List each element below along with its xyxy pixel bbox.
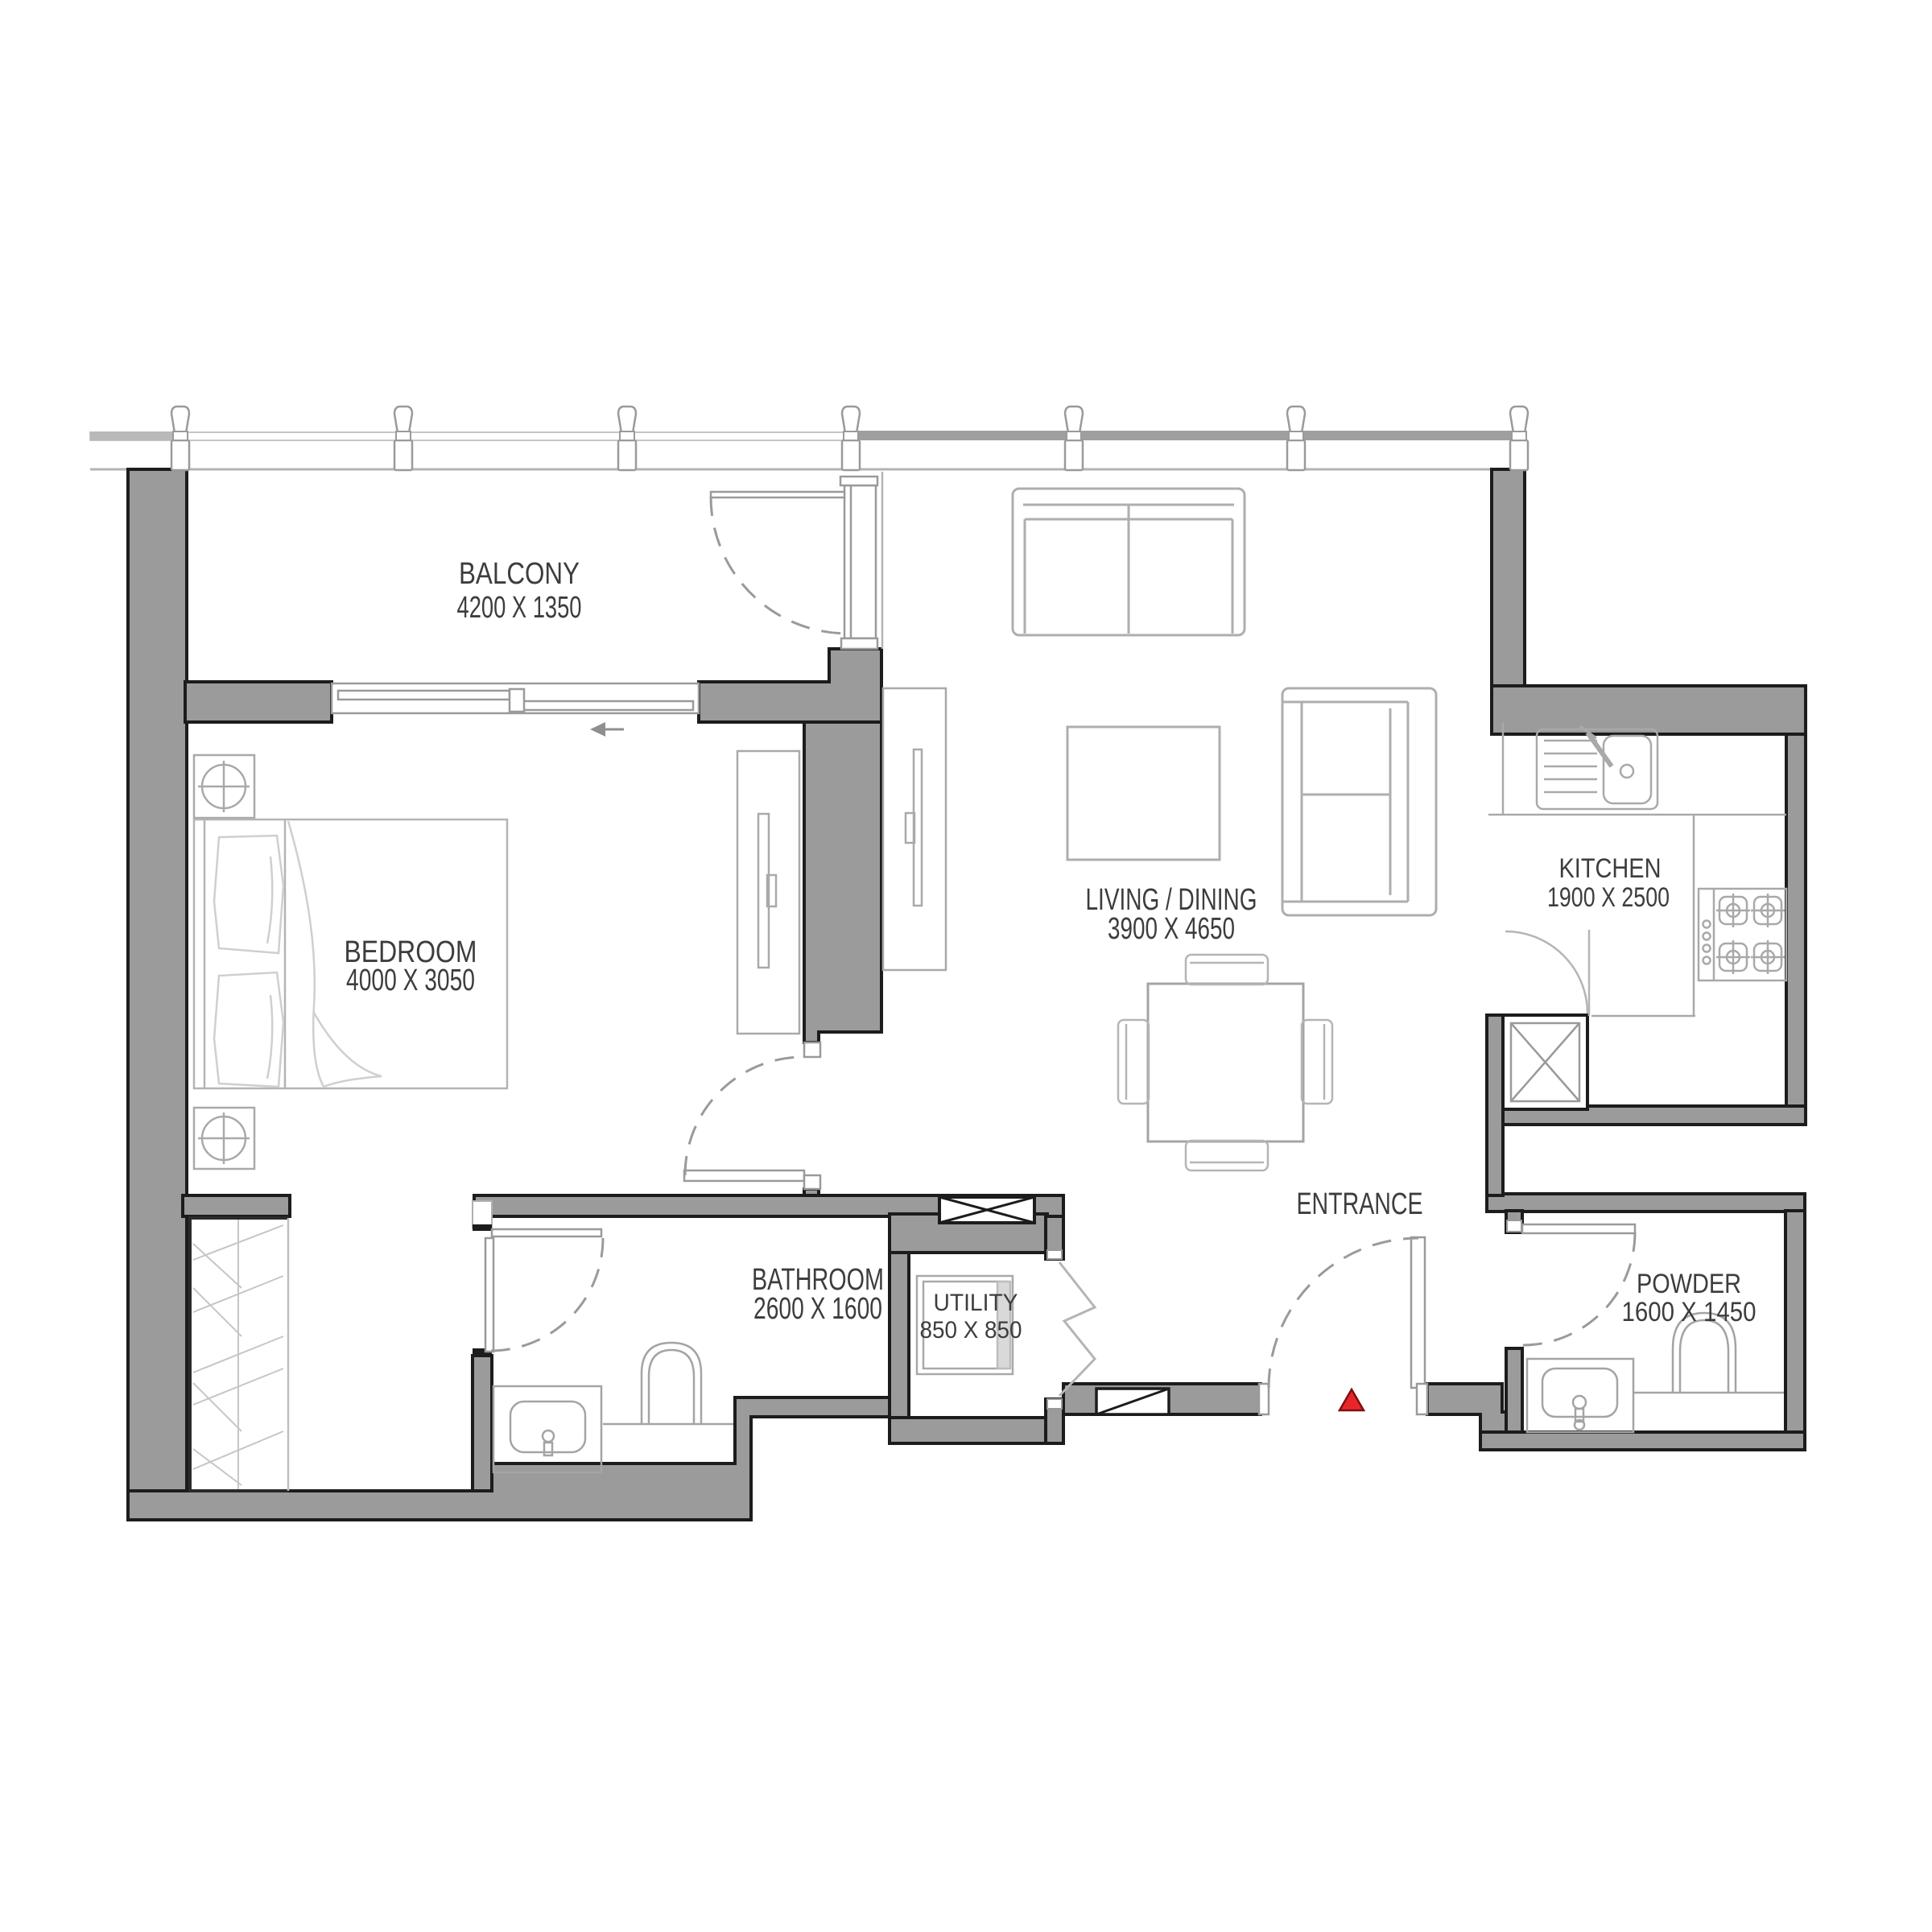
svg-text:1600 X 1450: 1600 X 1450 — [1622, 1297, 1757, 1327]
svg-text:POWDER: POWDER — [1637, 1269, 1741, 1299]
svg-text:2600 X 1600: 2600 X 1600 — [753, 1292, 882, 1326]
svg-text:4000 X 3050: 4000 X 3050 — [346, 964, 475, 997]
svg-text:3900 X 4650: 3900 X 4650 — [1108, 912, 1235, 946]
svg-text:ENTRANCE: ENTRANCE — [1297, 1187, 1423, 1221]
svg-text:850 X 850: 850 X 850 — [920, 1317, 1022, 1344]
svg-text:4200 X 1350: 4200 X 1350 — [457, 591, 582, 625]
svg-text:1900 X 2500: 1900 X 2500 — [1547, 882, 1670, 913]
svg-text:UTILITY: UTILITY — [934, 1290, 1018, 1316]
svg-text:KITCHEN: KITCHEN — [1559, 853, 1662, 884]
svg-text:BALCONY: BALCONY — [459, 557, 580, 591]
